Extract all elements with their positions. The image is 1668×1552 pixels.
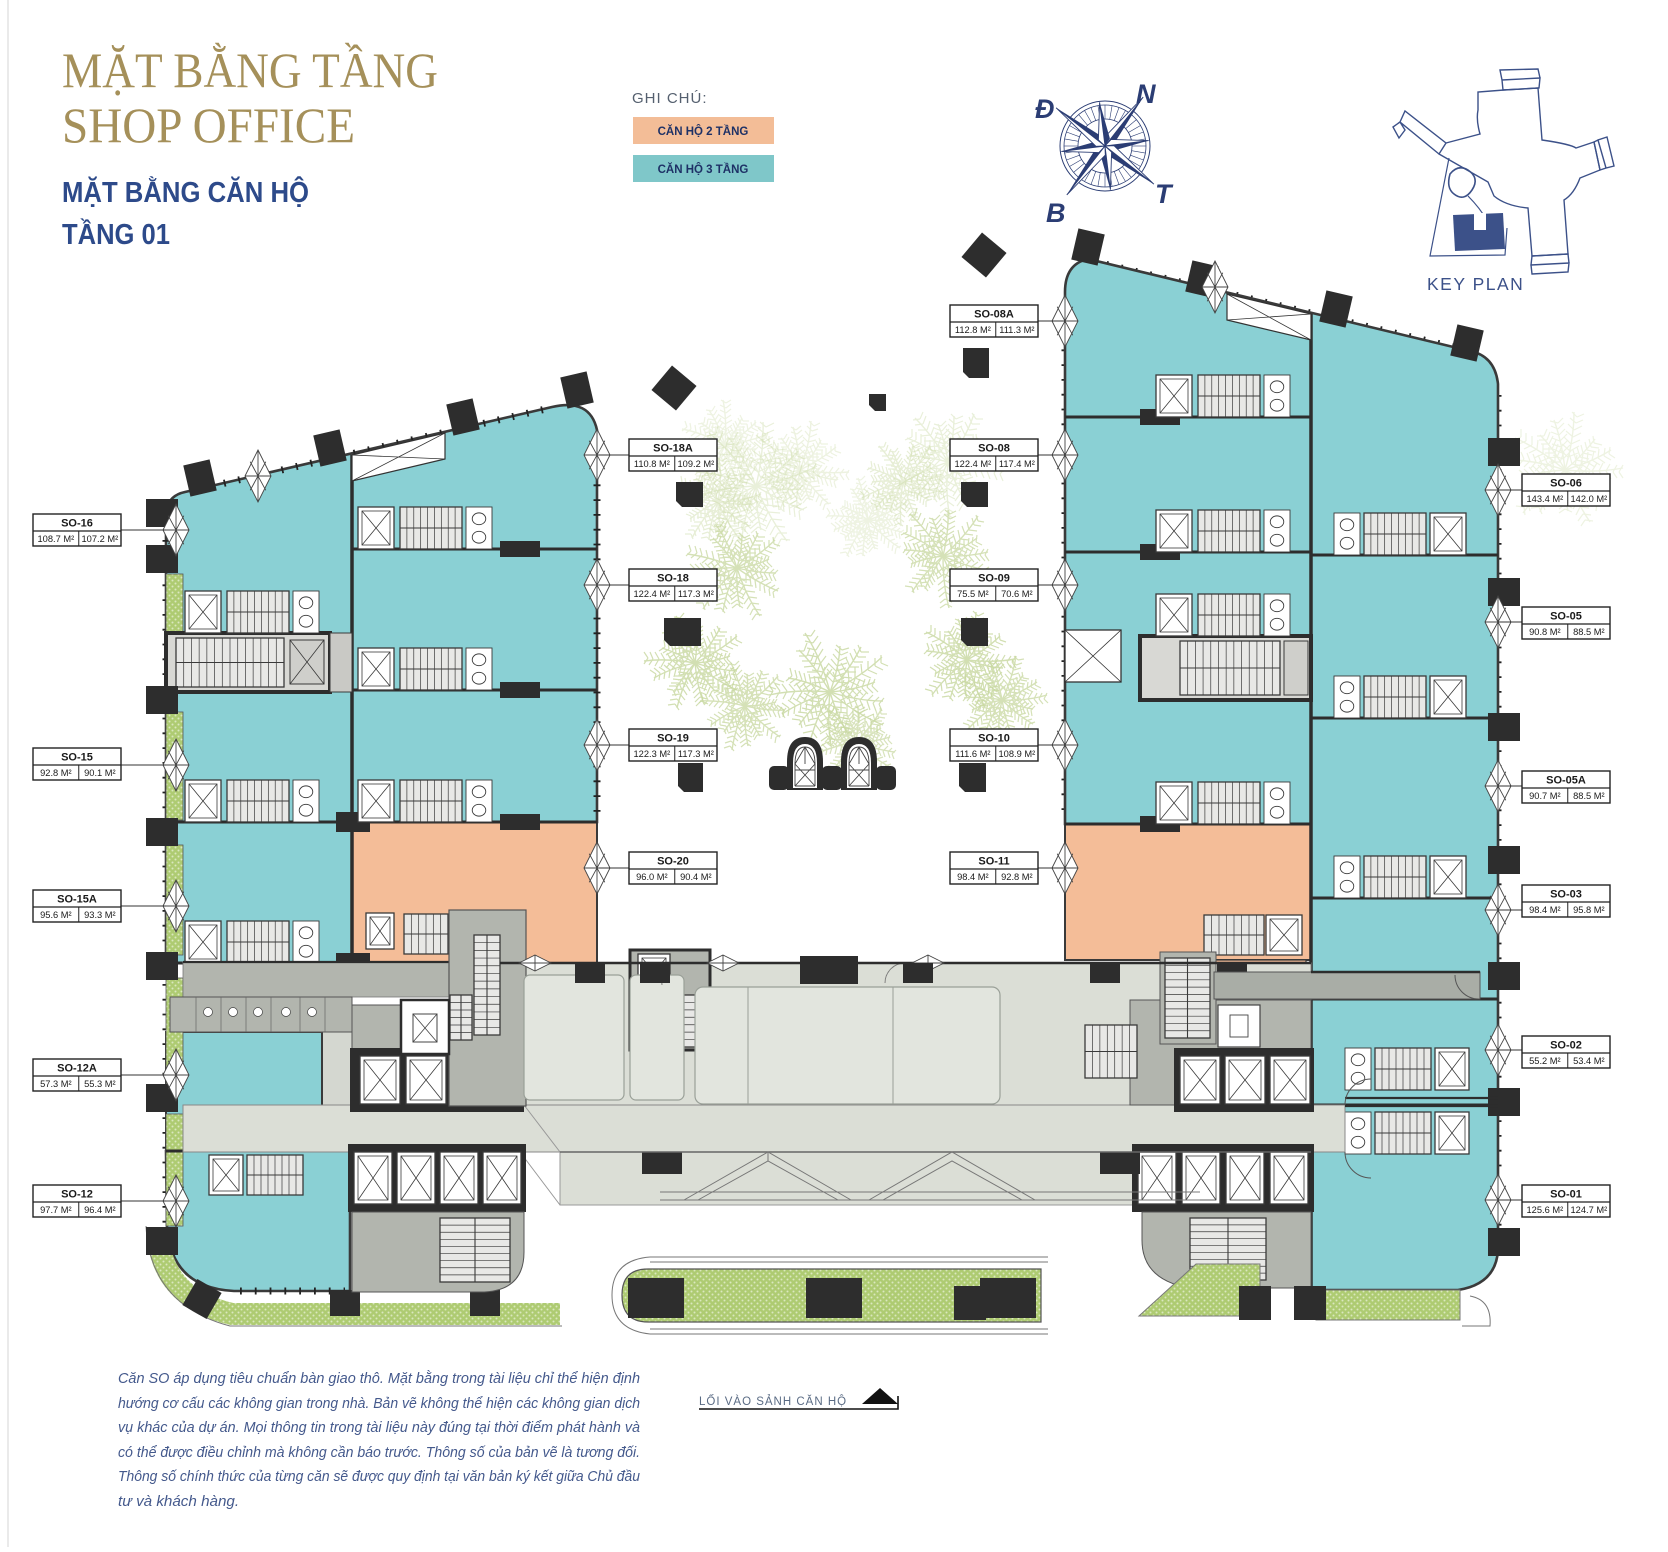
svg-text:90.1 M²: 90.1 M² bbox=[84, 768, 116, 778]
svg-text:125.6 M²: 125.6 M² bbox=[1527, 1205, 1564, 1215]
svg-text:92.8 M²: 92.8 M² bbox=[1001, 872, 1033, 882]
svg-text:SO-19: SO-19 bbox=[657, 733, 689, 745]
svg-text:SO-20: SO-20 bbox=[657, 856, 689, 868]
svg-text:97.7 M²: 97.7 M² bbox=[40, 1205, 72, 1215]
svg-text:SO-18: SO-18 bbox=[657, 573, 689, 585]
svg-text:90.4 M²: 90.4 M² bbox=[680, 872, 712, 882]
svg-text:SO-01: SO-01 bbox=[1550, 1189, 1582, 1201]
svg-text:CĂN HỘ 3 TẦNG: CĂN HỘ 3 TẦNG bbox=[658, 163, 749, 176]
svg-text:142.0 M²: 142.0 M² bbox=[1571, 494, 1608, 504]
svg-text:95.6 M²: 95.6 M² bbox=[40, 910, 72, 920]
svg-text:B: B bbox=[1046, 198, 1066, 228]
svg-text:SO-15: SO-15 bbox=[61, 752, 93, 764]
svg-text:LỐI VÀO SẢNH CĂN HỘ: LỐI VÀO SẢNH CĂN HỘ bbox=[699, 1394, 847, 1408]
svg-text:SO-08: SO-08 bbox=[978, 443, 1010, 455]
svg-text:MẶT BẰNG TẦNG: MẶT BẰNG TẦNG bbox=[62, 42, 438, 98]
svg-text:117.3 M²: 117.3 M² bbox=[678, 589, 714, 599]
svg-text:SO-12A: SO-12A bbox=[57, 1063, 97, 1075]
svg-text:SO-05: SO-05 bbox=[1550, 611, 1582, 623]
svg-text:SO-09: SO-09 bbox=[978, 573, 1010, 585]
svg-text:hướng cơ cấu các không gian tr: hướng cơ cấu các không gian trong nhà. B… bbox=[118, 1395, 640, 1412]
svg-text:98.4 M²: 98.4 M² bbox=[957, 872, 989, 882]
svg-text:96.0 M²: 96.0 M² bbox=[636, 872, 668, 882]
svg-text:tư và khách hàng.: tư và khách hàng. bbox=[118, 1493, 239, 1510]
svg-text:98.4 M²: 98.4 M² bbox=[1529, 905, 1561, 915]
svg-text:108.9 M²: 108.9 M² bbox=[999, 749, 1036, 759]
svg-text:SO-02: SO-02 bbox=[1550, 1040, 1582, 1052]
svg-text:117.3 M²: 117.3 M² bbox=[678, 749, 714, 759]
svg-text:96.4 M²: 96.4 M² bbox=[84, 1205, 116, 1215]
svg-text:SO-15A: SO-15A bbox=[57, 894, 97, 906]
svg-text:SO-03: SO-03 bbox=[1550, 889, 1582, 901]
svg-text:SO-16: SO-16 bbox=[61, 518, 93, 530]
svg-text:90.7 M²: 90.7 M² bbox=[1529, 791, 1561, 801]
svg-text:có thể được điều chỉnh mà khôn: có thể được điều chỉnh mà không cần báo … bbox=[118, 1444, 640, 1461]
svg-text:GHI CHÚ:: GHI CHÚ: bbox=[632, 90, 708, 107]
svg-text:SO-18A: SO-18A bbox=[653, 443, 693, 455]
svg-text:92.8 M²: 92.8 M² bbox=[40, 768, 72, 778]
svg-text:88.5 M²: 88.5 M² bbox=[1573, 791, 1605, 801]
svg-text:Thông số chính thức của từng c: Thông số chính thức của từng căn sẽ được… bbox=[118, 1468, 640, 1485]
svg-text:93.3 M²: 93.3 M² bbox=[84, 910, 116, 920]
svg-text:122.4 M²: 122.4 M² bbox=[634, 589, 671, 599]
svg-text:KEY PLAN: KEY PLAN bbox=[1427, 274, 1524, 294]
svg-text:SO-12: SO-12 bbox=[61, 1189, 93, 1201]
svg-text:95.8 M²: 95.8 M² bbox=[1573, 905, 1605, 915]
svg-text:111.3 M²: 111.3 M² bbox=[999, 325, 1034, 335]
svg-text:SO-06: SO-06 bbox=[1550, 478, 1582, 490]
svg-text:Đ: Đ bbox=[1035, 94, 1055, 124]
svg-text:112.8 M²: 112.8 M² bbox=[955, 325, 991, 335]
svg-text:90.8 M²: 90.8 M² bbox=[1529, 627, 1561, 637]
svg-text:53.4 M²: 53.4 M² bbox=[1573, 1056, 1605, 1066]
svg-text:N: N bbox=[1136, 79, 1156, 109]
svg-text:109.2 M²: 109.2 M² bbox=[678, 459, 715, 469]
svg-text:57.3 M²: 57.3 M² bbox=[40, 1079, 72, 1089]
svg-text:SHOP OFFICE: SHOP OFFICE bbox=[62, 97, 355, 153]
svg-text:Căn SO áp dụng tiêu chuẩn bàn: Căn SO áp dụng tiêu chuẩn bàn giao thô. … bbox=[118, 1370, 640, 1387]
svg-text:110.8 M²: 110.8 M² bbox=[634, 459, 670, 469]
svg-text:107.2 M²: 107.2 M² bbox=[82, 534, 119, 544]
svg-text:111.6 M²: 111.6 M² bbox=[955, 749, 990, 759]
svg-text:vụ khác của dự án. Mọi thông t: vụ khác của dự án. Mọi thông tin trong t… bbox=[118, 1419, 640, 1436]
svg-text:124.7 M²: 124.7 M² bbox=[1571, 1205, 1608, 1215]
svg-text:70.6 M²: 70.6 M² bbox=[1001, 589, 1033, 599]
svg-text:SO-10: SO-10 bbox=[978, 733, 1010, 745]
svg-text:122.4 M²: 122.4 M² bbox=[955, 459, 992, 469]
svg-text:SO-05A: SO-05A bbox=[1546, 775, 1586, 787]
svg-text:CĂN HỘ 2 TẦNG: CĂN HỘ 2 TẦNG bbox=[658, 125, 749, 138]
svg-text:88.5 M²: 88.5 M² bbox=[1573, 627, 1605, 637]
svg-text:55.3 M²: 55.3 M² bbox=[84, 1079, 116, 1089]
svg-text:108.7 M²: 108.7 M² bbox=[38, 534, 75, 544]
svg-text:75.5 M²: 75.5 M² bbox=[957, 589, 989, 599]
svg-text:TẦNG 01: TẦNG 01 bbox=[62, 217, 170, 251]
svg-text:SO-11: SO-11 bbox=[978, 856, 1009, 868]
svg-text:55.2 M²: 55.2 M² bbox=[1529, 1056, 1561, 1066]
svg-text:T: T bbox=[1155, 179, 1174, 209]
svg-text:SO-08A: SO-08A bbox=[974, 309, 1014, 321]
svg-text:122.3 M²: 122.3 M² bbox=[634, 749, 671, 759]
svg-text:117.4 M²: 117.4 M² bbox=[999, 459, 1035, 469]
svg-text:143.4 M²: 143.4 M² bbox=[1527, 494, 1564, 504]
svg-text:MẶT BẰNG CĂN HỘ: MẶT BẰNG CĂN HỘ bbox=[62, 175, 309, 209]
